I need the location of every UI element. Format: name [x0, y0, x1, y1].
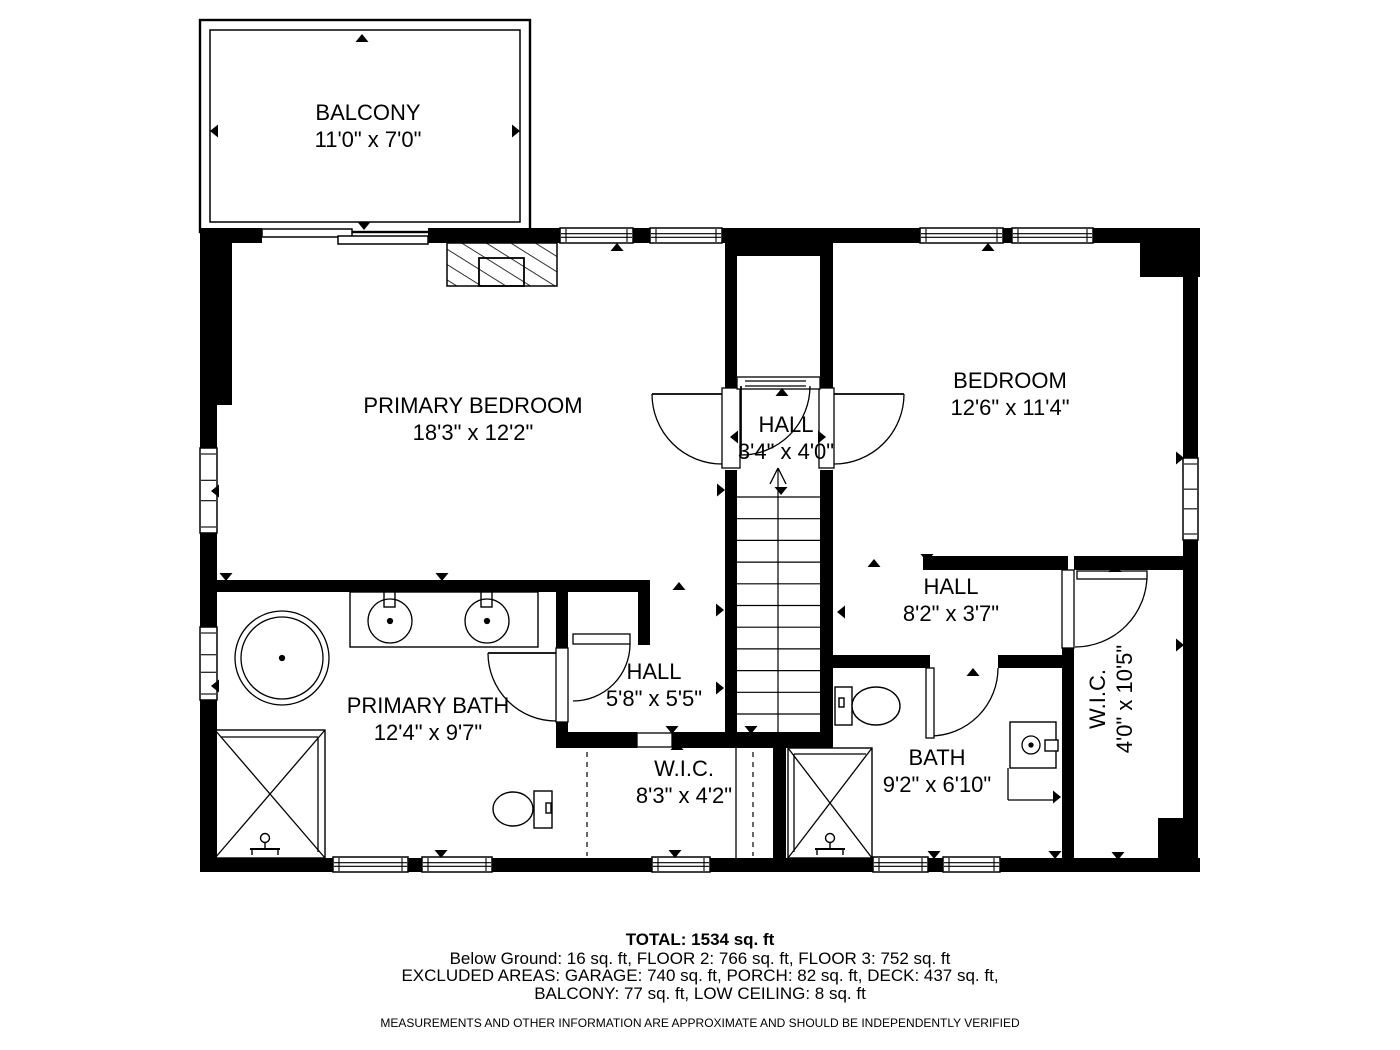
wall: [428, 228, 560, 243]
wall: [928, 858, 943, 872]
dimension-arrow: [982, 243, 995, 251]
window: [652, 857, 710, 872]
door-swing-arc: [834, 394, 904, 464]
fixture-circle: [1029, 743, 1033, 747]
excluded-areas-text-2: BALCONY: 77 sq. ft, LOW CEILING: 8 sq. f…: [0, 985, 1400, 1003]
wall: [633, 228, 650, 243]
dimension-arrow: [967, 668, 980, 676]
room-name: PRIMARY BATH: [347, 693, 510, 718]
room-dimensions: 5'8" x 5'5": [606, 686, 702, 711]
window: [200, 627, 217, 700]
fixture-outline: [350, 592, 538, 647]
fixture-outline: [546, 803, 551, 813]
wall: [710, 858, 873, 872]
wall: [725, 243, 737, 390]
dimension-arrow: [358, 222, 371, 230]
floor-plan-page: BALCONY11'0" x 7'0"PRIMARY BEDROOM18'3" …: [0, 0, 1400, 1050]
room-name: PRIMARY BEDROOM: [363, 393, 582, 418]
room-label-w-i-c: W.I.C.4'0" x 10'5": [1085, 645, 1137, 753]
wall: [737, 243, 820, 256]
window: [920, 228, 1003, 243]
wall: [492, 858, 652, 872]
dimension-arrow: [673, 582, 686, 590]
dimension-arrow: [1176, 639, 1184, 652]
wall: [1158, 818, 1185, 860]
window: [560, 228, 633, 243]
toilet-bowl: [493, 792, 533, 826]
sliding-door-panel: [338, 236, 428, 244]
fixture-outline: [839, 698, 844, 707]
wall: [998, 655, 1062, 668]
room-dimensions: 8'3" x 4'2": [636, 783, 732, 808]
wall: [1183, 540, 1198, 872]
wall: [833, 655, 930, 668]
window: [873, 857, 928, 872]
room-dimensions: 12'4" x 9'7": [374, 720, 482, 745]
room-label-bath: BATH9'2" x 6'10": [883, 745, 991, 797]
dimension-arrow: [837, 606, 845, 619]
fixture-line: [770, 468, 778, 484]
room-label-w-i-c: W.I.C.8'3" x 4'2": [636, 756, 732, 808]
wall: [820, 470, 833, 748]
dimension-arrow: [356, 34, 369, 42]
wall: [217, 243, 232, 405]
door-swing-arc: [930, 668, 998, 736]
wall: [556, 732, 637, 748]
window: [422, 857, 492, 872]
dimension-arrow: [928, 851, 941, 859]
fixture-outline: [1045, 740, 1058, 751]
room-label-primary-bedroom: PRIMARY BEDROOM18'3" x 12'2": [363, 393, 582, 445]
wall: [1000, 858, 1200, 872]
room-dimensions: 8'2" x 3'7": [903, 601, 999, 626]
fixture-circle: [485, 619, 490, 624]
room-label-hall: HALL8'2" x 3'7": [903, 574, 999, 626]
room-label-primary-bath: PRIMARY BATH12'4" x 9'7": [347, 693, 510, 745]
door-leaf: [573, 634, 630, 644]
wall: [722, 228, 920, 243]
dimension-arrow: [210, 125, 218, 138]
total-area-text: TOTAL: 1534 sq. ft: [0, 931, 1400, 949]
room-dimensions: 18'3" x 12'2": [413, 420, 534, 445]
fixture-circle: [388, 619, 393, 624]
room-name: W.I.C.: [654, 756, 714, 781]
room-name: HALL: [626, 659, 681, 684]
door-casing: [556, 648, 568, 722]
wall: [672, 732, 833, 748]
floor-plan-drawing: BALCONY11'0" x 7'0"PRIMARY BEDROOM18'3" …: [0, 0, 1400, 1050]
door-casing: [637, 733, 672, 747]
room-name: BATH: [908, 745, 965, 770]
wall: [556, 580, 568, 650]
room-name: HALL: [923, 574, 978, 599]
excluded-areas-text: EXCLUDED AREAS: GARAGE: 740 sq. ft, PORC…: [0, 967, 1400, 985]
fixture-circle: [280, 656, 285, 661]
room-dimensions: 3'4" x 4'0": [738, 439, 834, 464]
room-name: HALL: [758, 412, 813, 437]
dimension-arrow: [1053, 791, 1061, 804]
window: [1012, 228, 1093, 243]
room-dimensions: 4'0" x 10'5": [1112, 645, 1137, 753]
wall: [923, 556, 1068, 570]
room-dimensions: 12'6" x 11'4": [950, 395, 1069, 420]
shower-head-icon: [261, 834, 270, 843]
dimension-arrow: [436, 573, 449, 581]
room-dimensions: 11'0" x 7'0": [315, 127, 422, 152]
wall: [638, 580, 650, 645]
dimension-arrow: [868, 559, 881, 567]
shower-head-icon: [826, 834, 835, 843]
floor-areas-text: Below Ground: 16 sq. ft, FLOOR 2: 766 sq…: [0, 950, 1400, 968]
room-label-balcony: BALCONY11'0" x 7'0": [315, 100, 422, 152]
wall: [1093, 228, 1200, 243]
dimension-arrow: [716, 682, 724, 695]
wall: [725, 470, 737, 748]
door-casing: [737, 377, 820, 389]
room-dimensions: 9'2" x 6'10": [883, 772, 991, 797]
dimension-arrow: [775, 487, 788, 495]
area-summary: TOTAL: 1534 sq. ft Below Ground: 16 sq. …: [0, 931, 1400, 1033]
door-leaf: [1077, 571, 1147, 579]
wall: [200, 533, 217, 627]
dimension-arrow: [512, 125, 520, 138]
window: [333, 857, 408, 872]
dimension-arrow: [611, 243, 624, 251]
wall: [200, 228, 262, 243]
wall: [820, 243, 833, 390]
dimension-arrow: [220, 573, 233, 581]
window: [943, 857, 1000, 872]
wall: [1003, 228, 1012, 243]
wall: [1183, 243, 1198, 458]
wall: [217, 580, 650, 592]
dimension-arrow: [717, 484, 725, 497]
room-name: BEDROOM: [953, 368, 1067, 393]
wall: [200, 858, 333, 872]
chimney-hatch: [447, 243, 557, 286]
door-casing: [1062, 570, 1074, 648]
room-name: BALCONY: [315, 100, 420, 125]
window: [650, 228, 722, 243]
dimension-arrow: [716, 604, 724, 617]
door-leaf: [926, 668, 934, 738]
dimension-arrow: [1049, 851, 1062, 859]
fixture-line: [778, 468, 786, 484]
window: [1183, 458, 1198, 540]
wall: [1062, 647, 1074, 858]
room-label-bedroom: BEDROOM12'6" x 11'4": [950, 368, 1069, 420]
wall: [408, 858, 422, 872]
wall: [200, 243, 217, 448]
disclaimer-text: MEASUREMENTS AND OTHER INFORMATION ARE A…: [0, 1015, 1400, 1033]
room-label-hall: HALL5'8" x 5'5": [606, 659, 702, 711]
wall: [773, 748, 786, 858]
door-swing-arc: [652, 394, 722, 464]
room-name: W.I.C.: [1085, 669, 1110, 729]
toilet-bowl: [852, 687, 900, 725]
wall: [1074, 556, 1185, 570]
door-swing-arc: [1075, 575, 1147, 647]
